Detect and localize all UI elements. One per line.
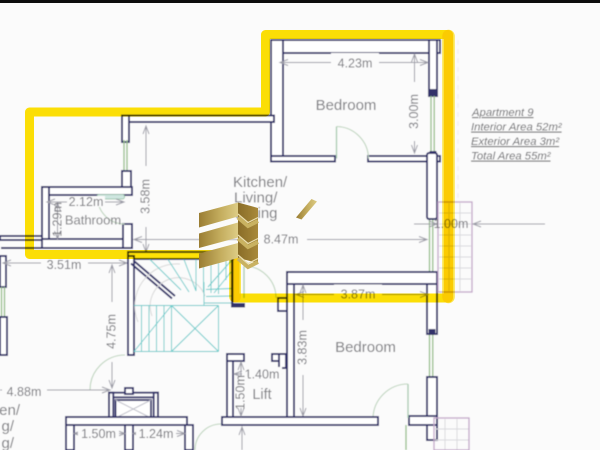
- svg-text:Exterior Area 3m²: Exterior Area 3m²: [471, 136, 560, 148]
- svg-text:Bedroom: Bedroom: [335, 339, 396, 356]
- svg-text:en/: en/: [0, 402, 21, 419]
- svg-text:Interior Area 52m²: Interior Area 52m²: [471, 122, 563, 134]
- svg-text:1.24m: 1.24m: [139, 427, 174, 441]
- svg-text:3.00m: 3.00m: [407, 94, 421, 129]
- svg-text:1.40m: 1.40m: [245, 368, 280, 382]
- svg-text:3.51m: 3.51m: [47, 258, 82, 272]
- svg-text:2.12m: 2.12m: [69, 195, 104, 209]
- svg-text:1.29m: 1.29m: [50, 202, 64, 237]
- svg-text:Total Area 55m²: Total Area 55m²: [471, 151, 552, 163]
- svg-text:3.83m: 3.83m: [295, 330, 309, 365]
- svg-text:8.47m: 8.47m: [264, 233, 299, 247]
- svg-text:Lift: Lift: [252, 387, 271, 403]
- svg-text:Bathroom: Bathroom: [65, 213, 121, 228]
- svg-text:Apartment 9: Apartment 9: [471, 107, 534, 119]
- svg-text:4.88m: 4.88m: [7, 385, 42, 399]
- svg-text:1.50m: 1.50m: [233, 375, 247, 410]
- svg-text:g/: g/: [1, 435, 14, 450]
- svg-text:3.58m: 3.58m: [138, 179, 152, 214]
- svg-text:4.75m: 4.75m: [104, 314, 118, 349]
- svg-text:Bedroom: Bedroom: [316, 97, 377, 114]
- svg-text:Kitchen/: Kitchen/: [233, 174, 288, 191]
- svg-text:1.50m: 1.50m: [81, 427, 116, 441]
- svg-text:g/: g/: [1, 418, 14, 435]
- svg-text:4.23m: 4.23m: [338, 57, 373, 71]
